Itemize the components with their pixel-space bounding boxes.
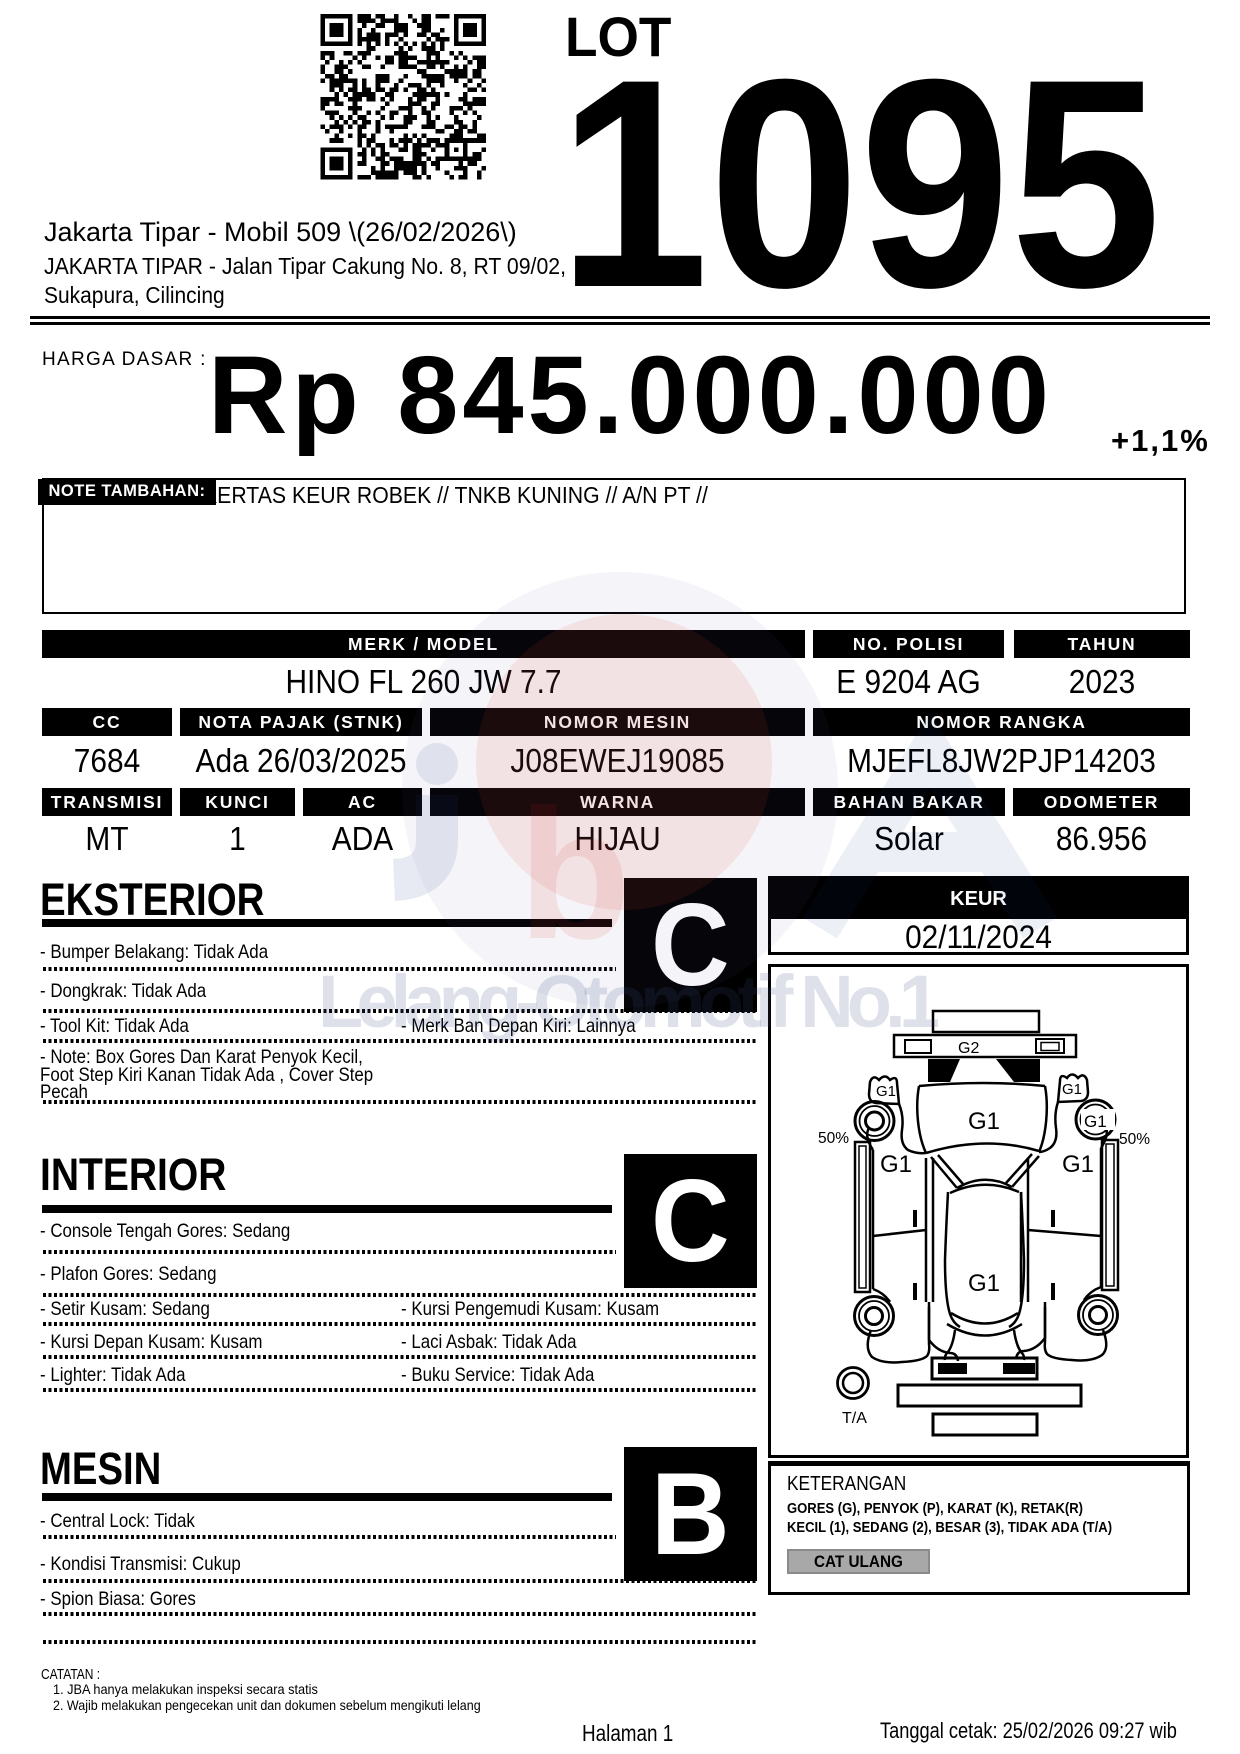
svg-text:G1: G1 bbox=[876, 1083, 896, 1100]
svg-text:G1: G1 bbox=[968, 1270, 1000, 1297]
svg-text:G1: G1 bbox=[1084, 1112, 1107, 1131]
svg-text:G1: G1 bbox=[880, 1151, 912, 1178]
svg-text:G1: G1 bbox=[1062, 1081, 1082, 1098]
svg-text:G1: G1 bbox=[1062, 1151, 1094, 1178]
svg-text:50%: 50% bbox=[1119, 1131, 1150, 1148]
svg-text:G2: G2 bbox=[958, 1040, 979, 1057]
svg-text:T/A: T/A bbox=[842, 1410, 867, 1427]
svg-text:G1: G1 bbox=[968, 1108, 1000, 1135]
svg-text:50%: 50% bbox=[818, 1130, 849, 1147]
